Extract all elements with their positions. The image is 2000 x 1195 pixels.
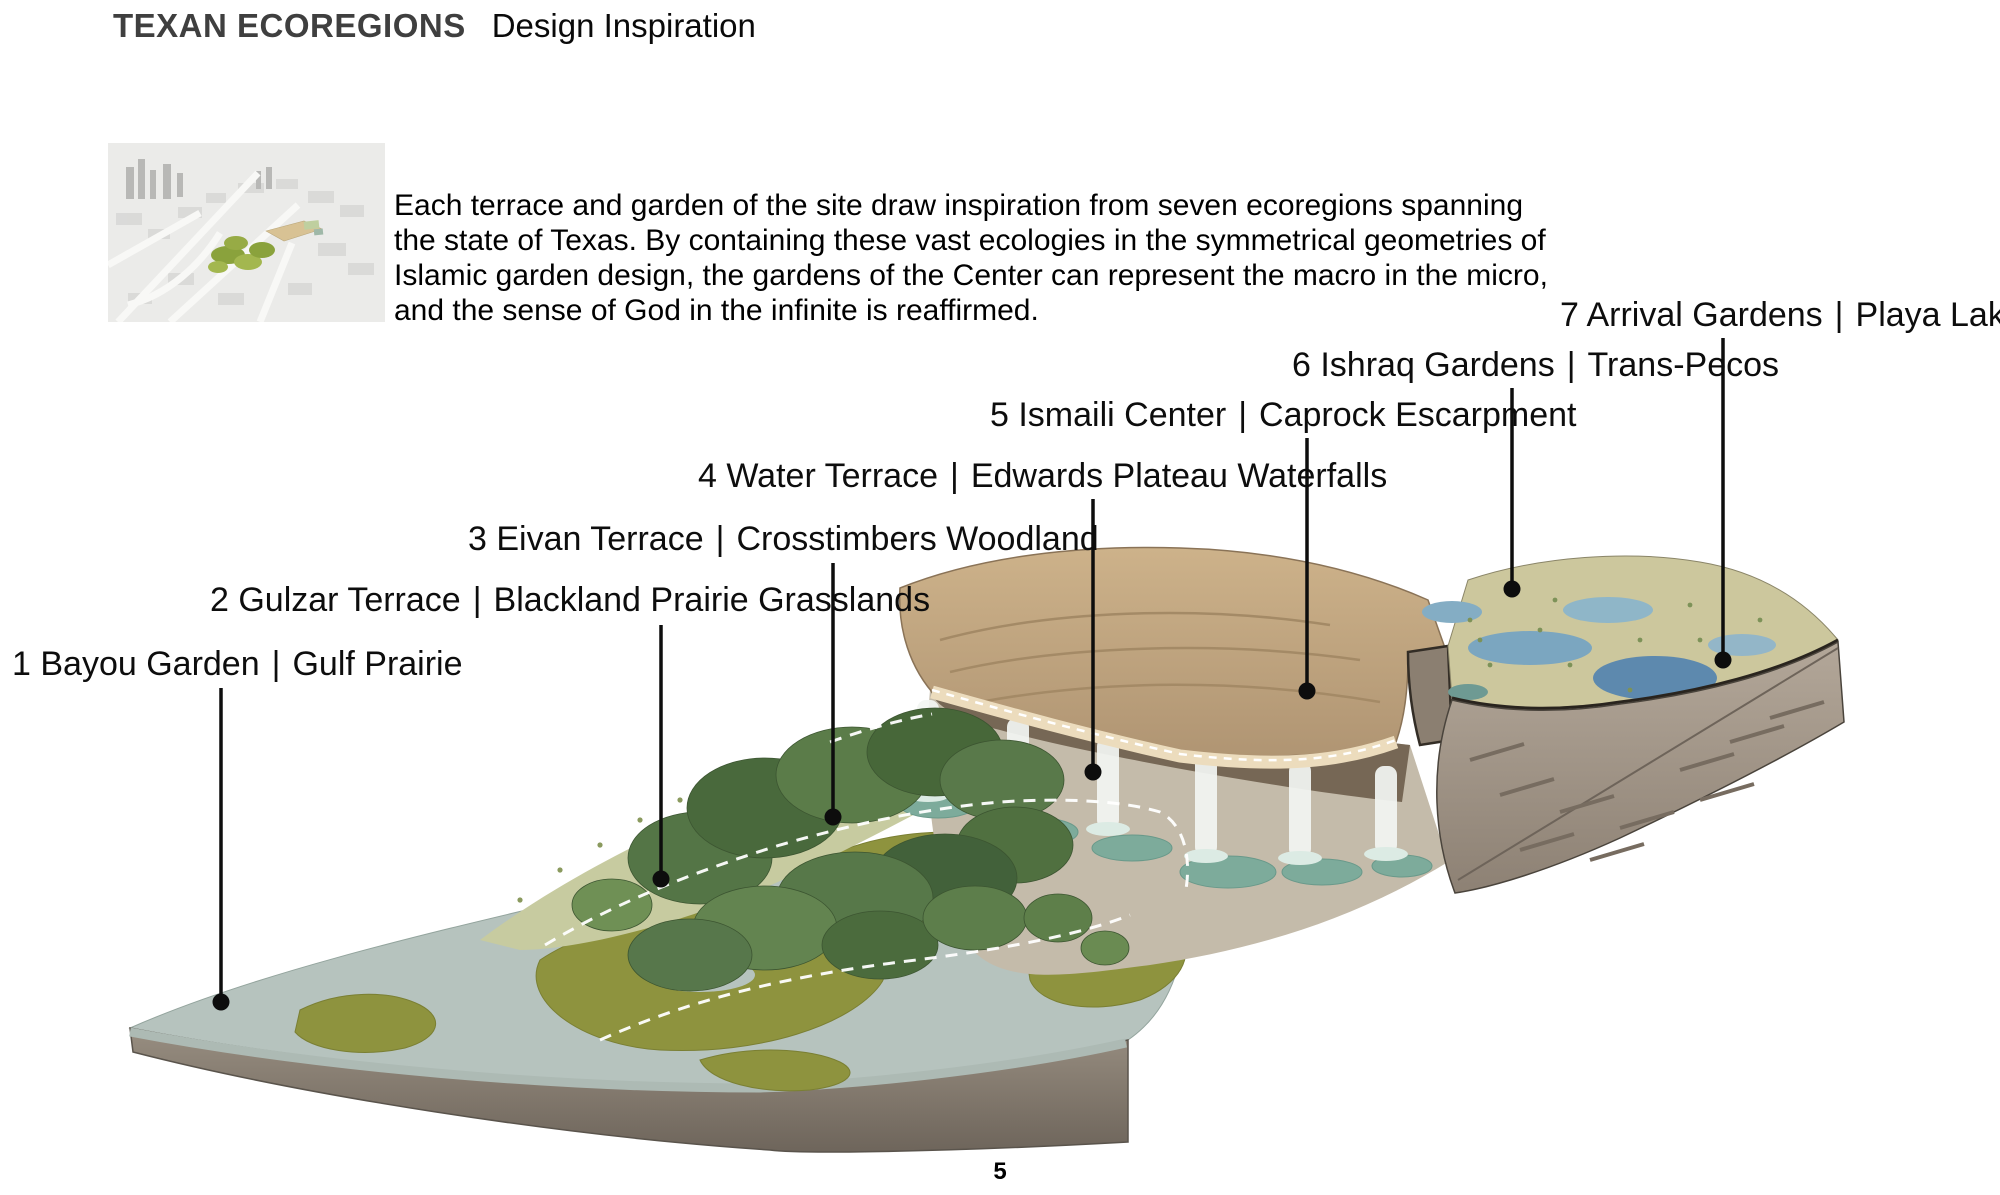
callout-separator: | <box>1238 396 1247 434</box>
terrain-illustration: 1 Bayou Garden|Gulf Prairie2 Gulzar Terr… <box>0 0 2000 1195</box>
callout-label-2: 2 Gulzar Terrace|Blackland Prairie Grass… <box>210 579 930 621</box>
callout-ecoregion: Edwards Plateau Waterfalls <box>971 457 1387 495</box>
waterfall <box>1375 766 1397 854</box>
vegetation-speckle <box>1478 638 1483 643</box>
vegetation-speckle <box>637 817 642 822</box>
vegetation-speckle <box>1628 688 1633 693</box>
leader-dot-6 <box>1504 581 1521 598</box>
leader-dot-1 <box>213 994 230 1011</box>
vegetation-speckle <box>517 897 522 902</box>
callout-garden: 2 Gulzar Terrace <box>210 581 461 619</box>
vegetation-speckle <box>1538 628 1543 633</box>
vegetation-speckle <box>1638 638 1643 643</box>
callout-ecoregion: Playa Lakes <box>1856 296 2000 334</box>
callout-separator: | <box>716 520 725 558</box>
vegetation-speckle <box>1468 618 1473 623</box>
callout-ecoregion: Caprock Escarpment <box>1259 396 1576 434</box>
leader-dot-3 <box>825 809 842 826</box>
callout-separator: | <box>272 645 281 683</box>
vegetation-speckle <box>1688 603 1693 608</box>
callout-ecoregion: Blackland Prairie Grasslands <box>494 581 931 619</box>
waterfall-mist <box>1184 849 1228 863</box>
vegetation-speckle <box>1568 663 1573 668</box>
callout-garden: 4 Water Terrace <box>698 457 938 495</box>
waterfall-mist <box>1278 851 1322 865</box>
callout-ecoregion: Trans-Pecos <box>1588 346 1779 384</box>
callout-garden: 1 Bayou Garden <box>12 645 260 683</box>
slide-page: TEXAN ECOREGIONSDesign Inspiration <box>0 0 2000 1195</box>
waterfall-mist <box>1086 822 1130 836</box>
waterfall <box>1097 737 1119 829</box>
vegetation-speckle <box>677 797 682 802</box>
callout-label-3: 3 Eivan Terrace|Crosstimbers Woodland <box>468 518 1099 560</box>
leader-dot-2 <box>653 871 670 888</box>
vegetation-speckle <box>597 842 602 847</box>
callout-garden: 5 Ismaili Center <box>990 396 1226 434</box>
callout-separator: | <box>1835 296 1844 334</box>
vegetation-speckle <box>1758 618 1763 623</box>
vegetation-speckle <box>1553 598 1558 603</box>
vegetation-speckle <box>557 867 562 872</box>
tree-canopy <box>923 886 1027 950</box>
tree-canopy <box>822 911 938 979</box>
callout-label-1: 1 Bayou Garden|Gulf Prairie <box>12 643 463 685</box>
region-playa-lakes <box>1422 556 1844 893</box>
callout-separator: | <box>473 581 482 619</box>
callout-garden: 3 Eivan Terrace <box>468 520 704 558</box>
leader-line-1 <box>213 688 230 1011</box>
callout-label-5: 5 Ismaili Center|Caprock Escarpment <box>990 394 1577 436</box>
callout-label-4: 4 Water Terrace|Edwards Plateau Waterfal… <box>698 455 1387 497</box>
tree-canopy <box>1081 931 1129 965</box>
callout-ecoregion: Gulf Prairie <box>292 645 462 683</box>
leader-dot-7 <box>1715 652 1732 669</box>
callout-label-6: 6 Ishraq Gardens|Trans-Pecos <box>1292 344 1779 386</box>
page-number: 5 <box>0 1158 2000 1186</box>
callout-separator: | <box>950 457 959 495</box>
waterfall <box>1289 762 1311 858</box>
waterfall-mist <box>1364 847 1408 861</box>
callout-label-7: 7 Arrival Gardens|Playa Lakes <box>1560 294 2000 336</box>
tree-canopy <box>628 919 752 991</box>
callout-separator: | <box>1567 346 1576 384</box>
callout-garden: 6 Ishraq Gardens <box>1292 346 1555 384</box>
callout-ecoregion: Crosstimbers Woodland <box>736 520 1098 558</box>
callout-garden: 7 Arrival Gardens <box>1560 296 1823 334</box>
plunge-pool <box>1092 835 1172 861</box>
leader-dot-5 <box>1299 683 1316 700</box>
vegetation-speckle <box>1488 663 1493 668</box>
vegetation-speckle <box>1698 638 1703 643</box>
leader-dot-4 <box>1085 764 1102 781</box>
